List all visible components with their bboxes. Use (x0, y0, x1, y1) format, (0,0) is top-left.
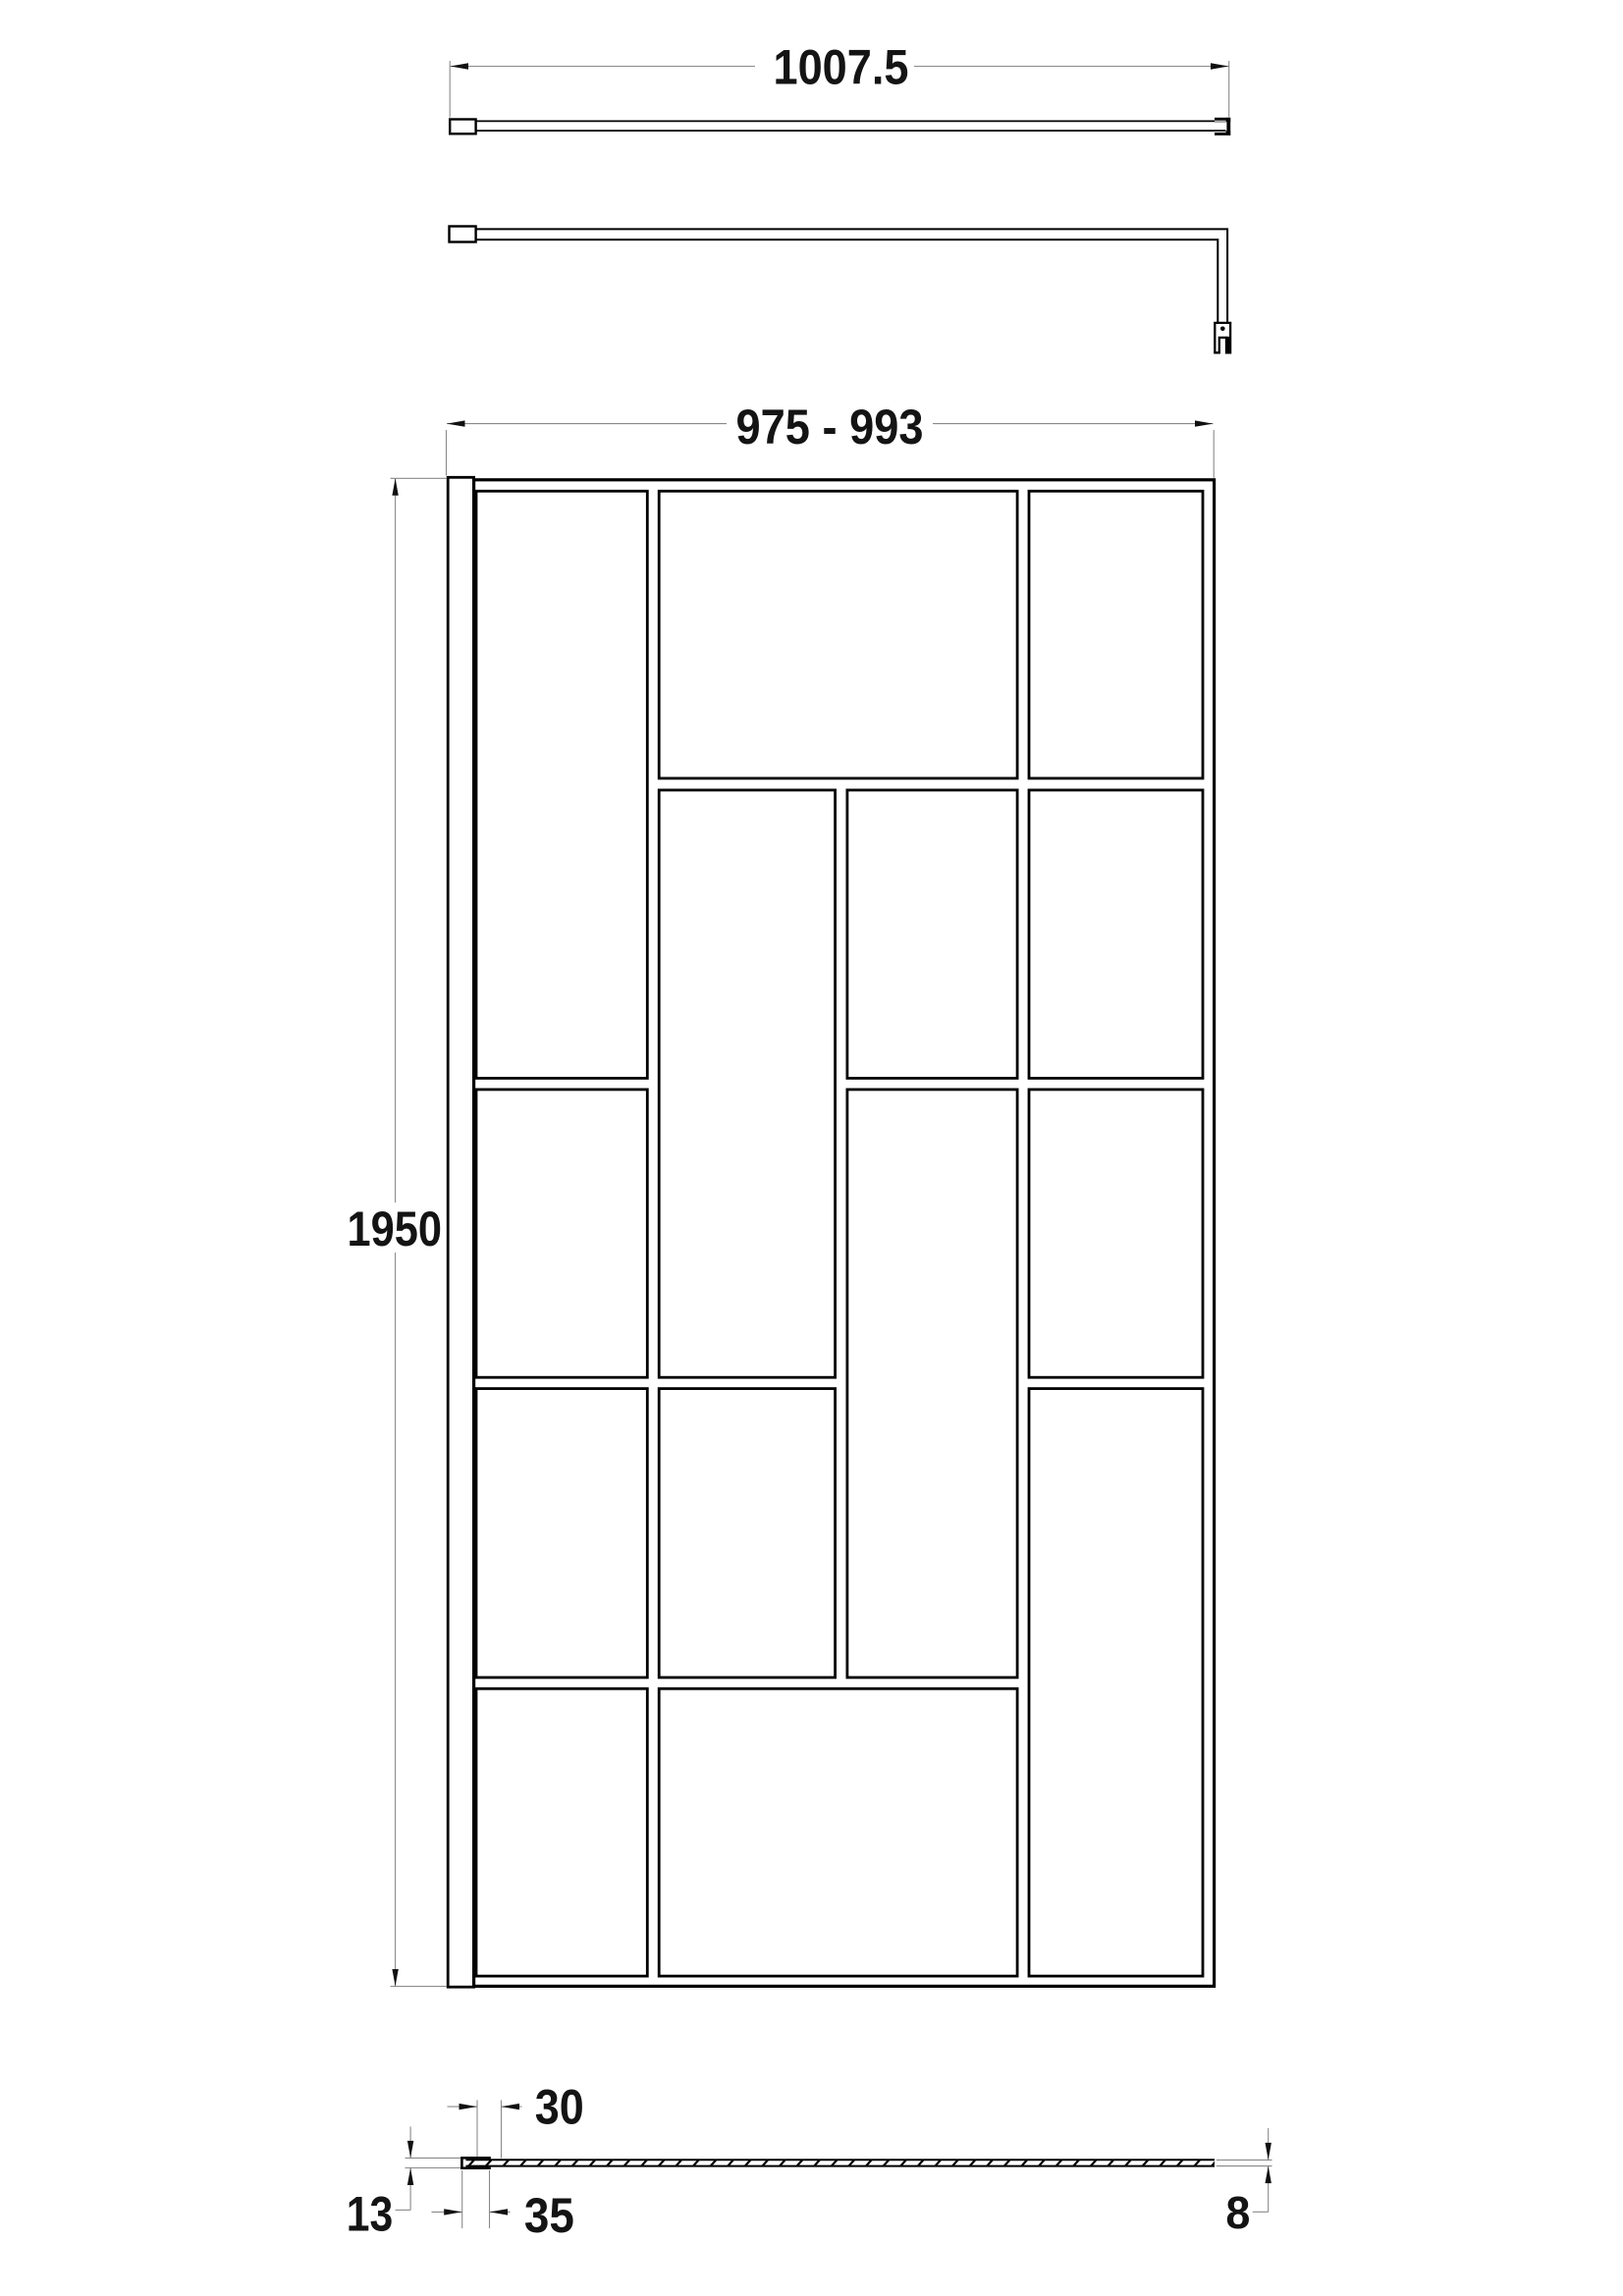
svg-text:1950: 1950 (348, 1201, 443, 1256)
svg-text:30: 30 (535, 2079, 584, 2134)
svg-text:975 - 993: 975 - 993 (736, 400, 924, 454)
svg-text:13: 13 (347, 2187, 394, 2242)
svg-text:1007.5: 1007.5 (774, 40, 909, 95)
svg-text:8: 8 (1225, 2187, 1250, 2238)
svg-text:35: 35 (524, 2188, 574, 2243)
